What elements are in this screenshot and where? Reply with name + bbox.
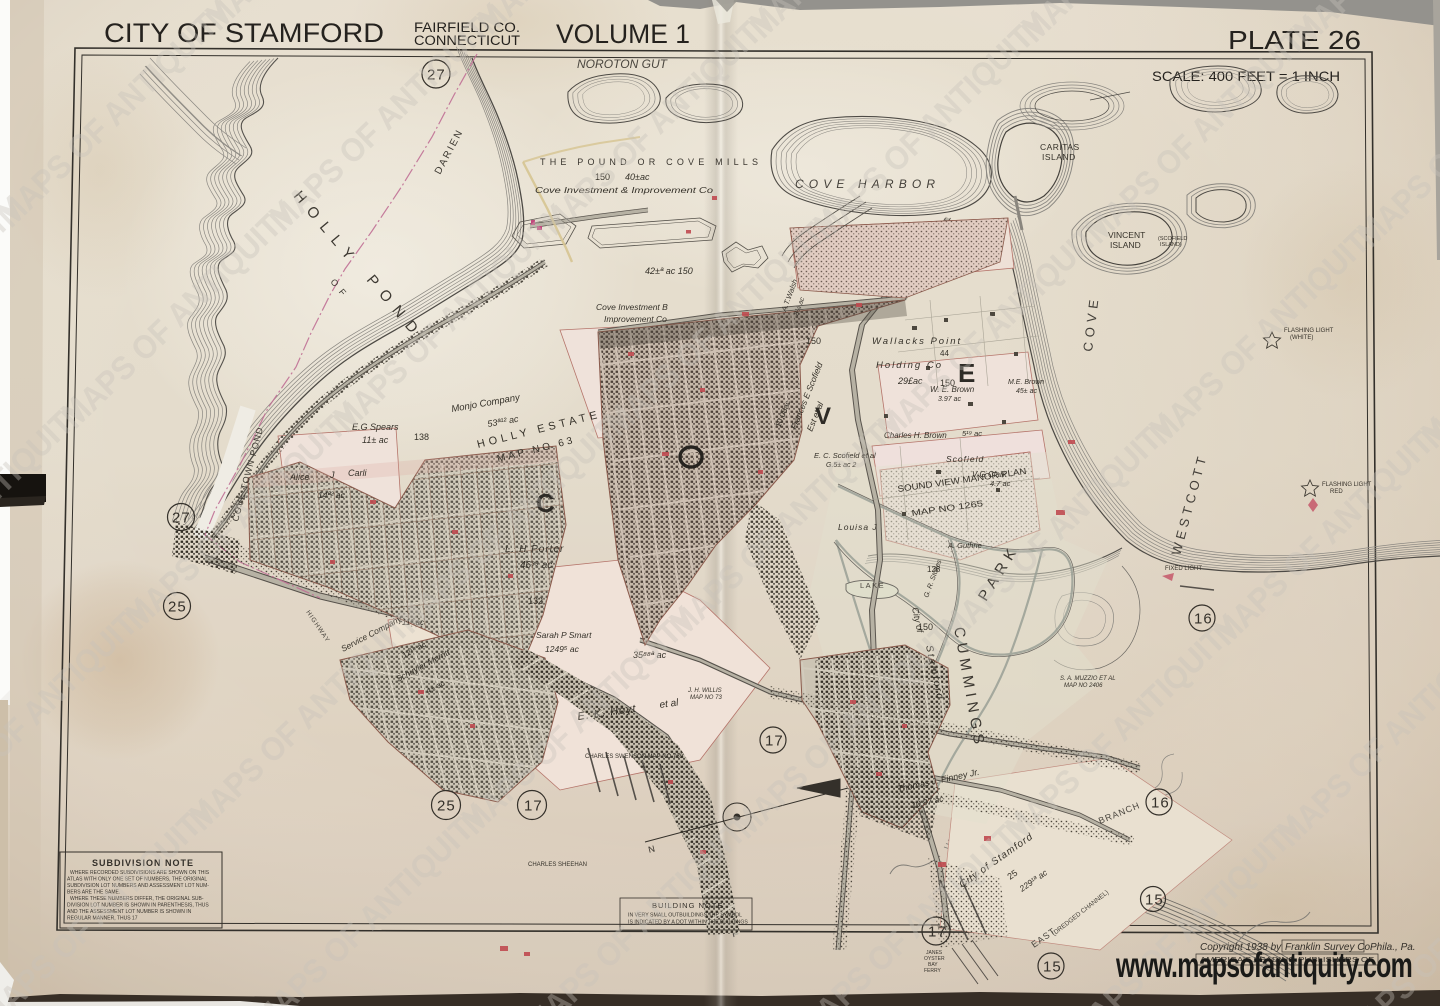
svg-text:15: 15: [1145, 892, 1164, 909]
svg-text:A. Guthrie: A. Guthrie: [947, 541, 982, 550]
svg-text:(WHITE): (WHITE): [1290, 335, 1313, 341]
svg-text:17: 17: [524, 798, 543, 815]
svg-text:27: 27: [172, 510, 191, 527]
svg-text:CARITAS: CARITAS: [1040, 142, 1080, 152]
svg-text:Improvement Co: Improvement Co: [604, 314, 667, 324]
svg-text:V: V: [815, 403, 831, 430]
svg-text:ISLAND: ISLAND: [1042, 152, 1076, 162]
svg-text:14ª² ac: 14ª² ac: [318, 490, 346, 500]
svg-text:15: 15: [1043, 959, 1062, 976]
svg-text:S. A. MUZZIO ET AL: S. A. MUZZIO ET AL: [1060, 676, 1116, 682]
svg-text:MAP NO 73: MAP NO 73: [690, 695, 722, 701]
svg-text:VOLUME 1: VOLUME 1: [556, 19, 690, 49]
svg-text:150: 150: [806, 336, 821, 346]
svg-text:ISLAND: ISLAND: [1110, 240, 1141, 250]
svg-text:J. H. WILLIS: J. H. WILLIS: [687, 688, 722, 694]
svg-text:17: 17: [765, 733, 784, 750]
svg-text:LAKE: LAKE: [860, 581, 885, 590]
svg-text:www.mapsofantiquity.com: www.mapsofantiquity.com: [1115, 946, 1412, 985]
svg-text:42±ª ac 150: 42±ª ac 150: [645, 266, 693, 276]
svg-text:CHARLES SWENSON MAP NO 769: CHARLES SWENSON MAP NO 769: [585, 754, 684, 760]
svg-text:16: 16: [1151, 795, 1170, 812]
svg-text:ISLAND): ISLAND): [1160, 242, 1182, 248]
svg-text:5¹⁹ ac: 5¹⁹ ac: [962, 429, 982, 438]
svg-text:138: 138: [414, 432, 429, 442]
svg-text:11± ac: 11± ac: [362, 435, 389, 445]
svg-text:FERRY: FERRY: [924, 968, 942, 974]
svg-text:132: 132: [528, 596, 543, 606]
svg-text:Sarah P Smart: Sarah P Smart: [536, 630, 592, 640]
svg-text:M.E. Brown: M.E. Brown: [1008, 379, 1044, 386]
svg-text:46³⁹ ac: 46³⁹ ac: [520, 560, 552, 571]
svg-text:45± ac: 45± ac: [1016, 388, 1037, 395]
svg-text:Cove Investment B: Cove Investment B: [596, 302, 668, 312]
svg-text:NOROTON GUT: NOROTON GUT: [577, 59, 668, 71]
svg-text:Scofield: Scofield: [946, 454, 984, 464]
svg-text:CITY OF STAMFORD: CITY OF STAMFORD: [104, 18, 384, 48]
svg-text:1249⁵ ac: 1249⁵ ac: [545, 644, 580, 654]
svg-text:L. H Porter: L. H Porter: [505, 544, 564, 555]
svg-text:Carli: Carli: [348, 468, 368, 478]
svg-text:CHARLES SHEEHAN: CHARLES SHEEHAN: [528, 862, 587, 868]
svg-text:MAP NO 2406: MAP NO 2406: [1064, 683, 1103, 689]
svg-text:J: J: [329, 470, 335, 480]
svg-text:Louisa J: Louisa J: [838, 522, 878, 532]
svg-text:FIXED LIGHT: FIXED LIGHT: [1165, 566, 1202, 572]
